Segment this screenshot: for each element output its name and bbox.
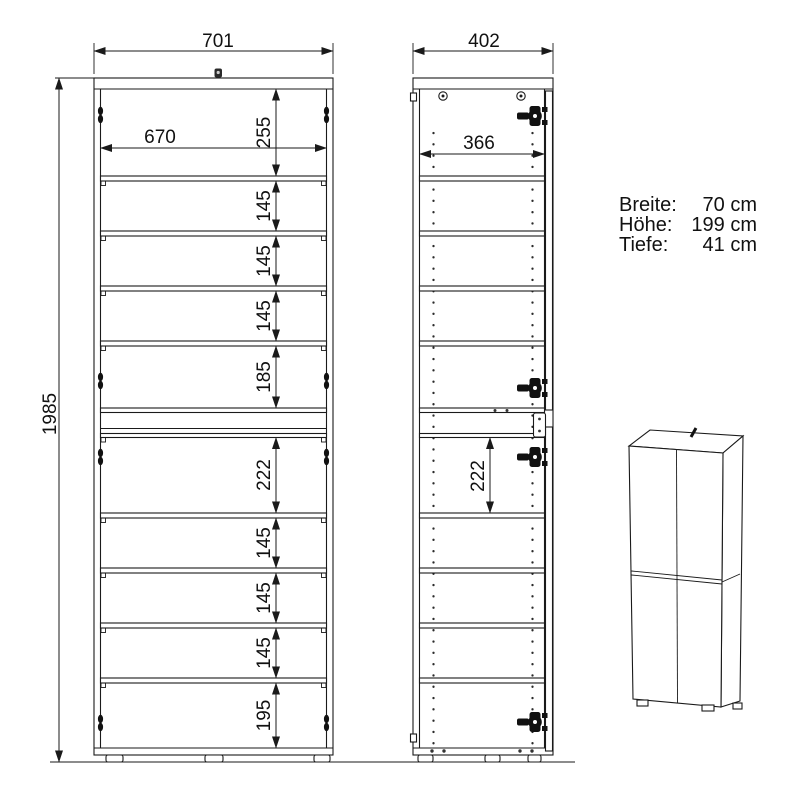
section-dim-label: 145 — [254, 245, 275, 277]
spec-value: 199 cm — [691, 214, 757, 236]
technical-drawing-canvas: 701 670 1985 255 145 145 145 185 222 145 — [0, 0, 800, 800]
spec-label: Breite: — [619, 194, 677, 216]
side-depth-dim-label: 402 — [468, 31, 500, 52]
front-width-dim-label: 701 — [202, 31, 234, 52]
side-upper-door — [546, 91, 553, 410]
section-dim-label: 145 — [254, 527, 275, 559]
spec-value: 70 cm — [703, 194, 757, 216]
cabinet-3d-view — [629, 428, 743, 711]
front-inner-width-dim-label: 670 — [144, 127, 176, 148]
section-dim-label: 195 — [254, 700, 275, 732]
back-fitting — [411, 93, 417, 101]
section-dim-label: 222 — [254, 459, 275, 491]
section-dim-label: 145 — [254, 582, 275, 614]
side-lower-door — [546, 427, 553, 751]
spec-value: 41 cm — [703, 234, 757, 256]
side-section-dim-label: 222 — [468, 460, 489, 492]
section-dim-label: 145 — [254, 190, 275, 222]
screw-icon — [215, 69, 223, 78]
section-dim-label: 255 — [254, 117, 275, 149]
front-view — [94, 69, 333, 763]
section-dim-label: 145 — [254, 300, 275, 332]
side-view — [411, 78, 554, 762]
side-inner-depth-dim-label: 366 — [463, 133, 495, 154]
section-dim-label: 145 — [254, 637, 275, 669]
back-fitting — [411, 734, 417, 742]
section-dim-label: 185 — [254, 361, 275, 393]
mid-connector-bracket — [534, 413, 546, 437]
spec-label: Tiefe: — [619, 234, 668, 256]
spec-label: Höhe: — [619, 214, 672, 236]
front-height-dim-label: 1985 — [40, 393, 61, 435]
